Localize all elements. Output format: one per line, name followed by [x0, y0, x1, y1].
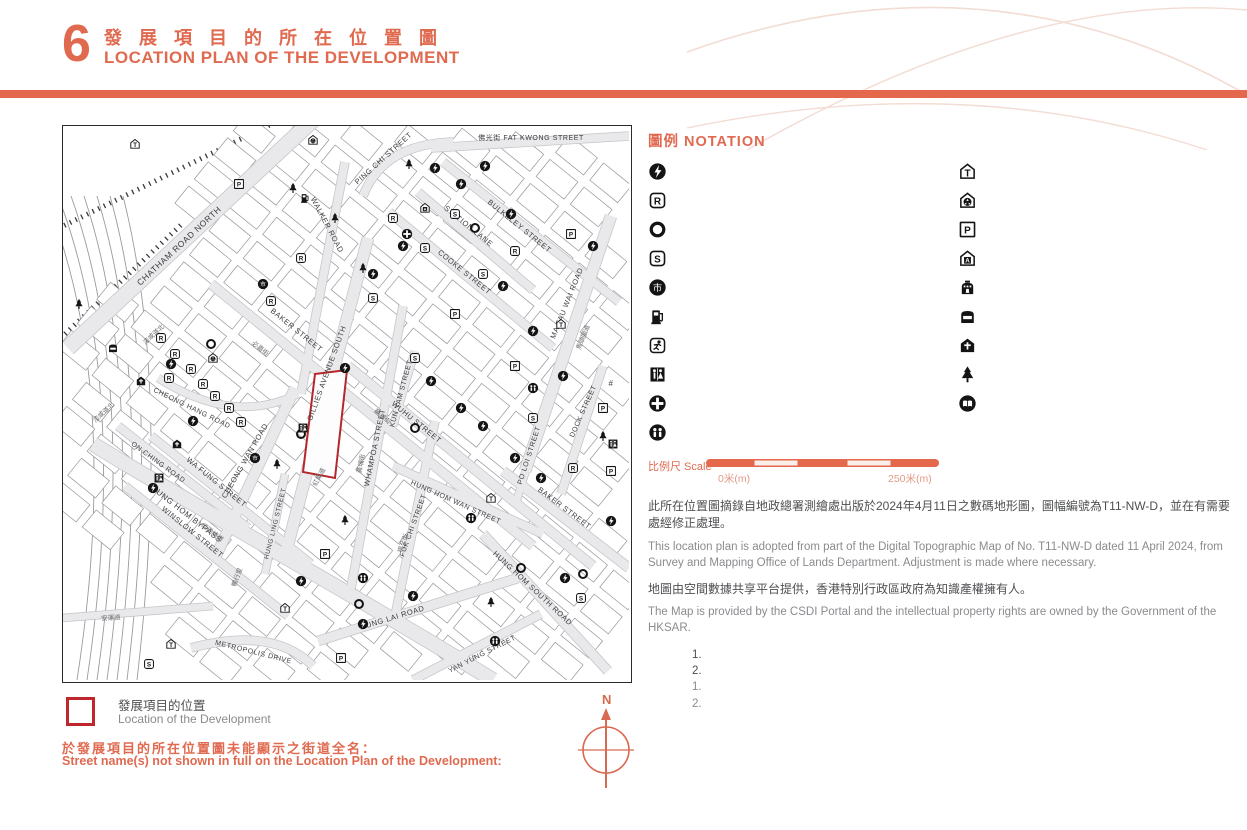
power-icon [497, 280, 510, 293]
svg-text:R: R [513, 249, 518, 256]
north-compass: N [568, 688, 644, 800]
religious-icon: R [185, 363, 198, 376]
power-icon [425, 375, 438, 388]
legend-item [958, 306, 1242, 326]
svg-text:R: R [227, 406, 232, 413]
svg-text:S: S [423, 246, 427, 253]
legend-item [958, 277, 1242, 297]
addiction-icon: A [958, 249, 977, 268]
notes-label [648, 647, 692, 663]
scale-start-label: 0米(m) [718, 471, 750, 486]
svg-text:P: P [237, 182, 241, 189]
svg-text:P: P [569, 232, 573, 239]
svg-text:S: S [481, 272, 485, 279]
power-icon [479, 160, 492, 173]
svg-text:P: P [453, 312, 457, 319]
note-row: 1. [648, 679, 1242, 695]
power-icon [605, 515, 618, 528]
utility-icon [353, 598, 366, 611]
svg-text:P: P [339, 656, 343, 663]
svg-text:S: S [147, 662, 151, 669]
street-names-list [62, 772, 582, 775]
power-icon [339, 362, 352, 375]
transport-icon: T [485, 492, 498, 505]
carpark-icon: P [449, 308, 462, 321]
school-icon: S [527, 412, 540, 425]
power-icon [397, 240, 410, 253]
transport-icon: T [165, 638, 178, 651]
scale-bar-row: 比例尺 Scale 0米(m) 250米(m) [648, 458, 1242, 488]
transport-icon: T [279, 602, 292, 615]
welfare-icon [357, 572, 370, 585]
svg-text:R: R [654, 197, 661, 208]
market-icon: 市 [648, 278, 667, 297]
legend-item: T [958, 161, 1242, 181]
petrol-icon [299, 192, 312, 205]
svg-text:T: T [169, 642, 173, 649]
park-icon [597, 430, 610, 443]
utility-icon [648, 220, 667, 239]
svg-text:R: R [571, 466, 576, 473]
svg-text:R: R [189, 367, 194, 374]
note-text [708, 696, 1242, 712]
religious-icon: R [648, 191, 667, 210]
welfare-icon [527, 382, 540, 395]
power-icon [295, 575, 308, 588]
decorative-arcs [687, 0, 1247, 150]
carpark-icon: P [233, 178, 246, 191]
religious-icon: R [163, 372, 176, 385]
svg-text:P: P [323, 552, 327, 559]
refuse-icon [958, 191, 977, 210]
note-text [708, 679, 1242, 695]
school-icon: S [419, 242, 432, 255]
note-row: 2. [648, 696, 1242, 712]
scale-bar [706, 459, 939, 467]
development-location-key-swatch [66, 697, 95, 726]
transport-icon: T [129, 138, 142, 151]
school-icon: S [648, 249, 667, 268]
svg-text:S: S [371, 296, 375, 303]
svg-text:S: S [413, 356, 417, 363]
school-icon: S [575, 592, 588, 605]
source-paragraph-2-en: The Map is provided by the CSDI Portal a… [648, 604, 1242, 636]
note-row: 1. [648, 647, 1242, 663]
svg-text:R: R [391, 216, 396, 223]
sports-icon [648, 336, 667, 355]
power-icon [559, 572, 572, 585]
legend-item [648, 335, 958, 355]
development-location-label-en: Location of the Development [118, 712, 271, 726]
power-icon [587, 240, 600, 253]
svg-text:R: R [167, 376, 172, 383]
svg-text:T: T [559, 322, 563, 329]
power-icon [407, 590, 420, 603]
svg-text:R: R [239, 420, 244, 427]
page-title-en: LOCATION PLAN OF THE DEVELOPMENT [104, 48, 460, 68]
religious-icon: R [155, 332, 168, 345]
street-names-heading-en: Street name(s) not shown in full on the … [62, 754, 502, 768]
map-street-label: # [608, 379, 613, 388]
scale-end-label: 250米(m) [888, 471, 932, 486]
funeral-icon [958, 336, 977, 355]
religious-icon: R [169, 348, 182, 361]
svg-text:T: T [133, 142, 137, 149]
park-icon [287, 182, 300, 195]
legend-item: S [648, 248, 958, 268]
north-label: N [602, 692, 611, 707]
religious-icon: R [235, 416, 248, 429]
library-icon [958, 394, 977, 413]
school-icon: S [409, 352, 422, 365]
svg-text:A: A [965, 257, 970, 264]
religious-icon: R [295, 252, 308, 265]
svg-text:R: R [299, 256, 304, 263]
legend-item [648, 422, 958, 442]
carpark-icon: P [319, 548, 332, 561]
power-icon [535, 472, 548, 485]
religious-icon: R [223, 402, 236, 415]
clinic-icon [401, 228, 414, 241]
market-icon: 市 [249, 452, 262, 465]
legend-item [958, 190, 1242, 210]
location-plan-map[interactable]: CHATHAM ROAD NORTHPING CHI STREET佛光街 FAT… [62, 125, 632, 683]
svg-text:T: T [283, 606, 287, 613]
utility-icon [469, 222, 482, 235]
legend-item: 市 [648, 277, 958, 297]
svg-text:T: T [964, 168, 970, 179]
park-icon [403, 158, 416, 171]
power-icon [509, 452, 522, 465]
market-icon: 市 [257, 278, 270, 291]
note-text [708, 663, 1242, 679]
page-title-zh: 發 展 項 目 的 所 在 位 置 圖 [104, 24, 443, 50]
park-icon [271, 458, 284, 471]
legend-item [958, 335, 1242, 355]
religious-icon: R [265, 295, 278, 308]
source-paragraph-1-zh: 此所在位置圖摘錄自地政總署測繪處出版於2024年4月11日之數碼地形圖，圖幅編號… [648, 498, 1242, 533]
carpark-icon: P [958, 220, 977, 239]
source-paragraph-1-en: This location plan is adopted from part … [648, 539, 1242, 571]
funeral-icon [171, 438, 184, 451]
svg-text:P: P [513, 364, 517, 371]
legend-item [958, 364, 1242, 384]
mortuary-icon [958, 307, 977, 326]
note-row: 2. [648, 663, 1242, 679]
religious-icon: R [387, 212, 400, 225]
school-icon: S [449, 208, 462, 221]
notes-block: 1.2.1.2. [648, 647, 1242, 712]
school-icon: S [477, 268, 490, 281]
right-column: 圖例 NOTATION RS市 TPA 比例尺 Scale 0米(m) 250米… [648, 130, 1242, 712]
refuse-icon [307, 134, 320, 147]
carpark-icon: P [335, 652, 348, 665]
svg-text:T: T [489, 496, 493, 503]
svg-text:P: P [601, 406, 605, 413]
addiction-icon: A [419, 202, 432, 215]
park-icon [485, 596, 498, 609]
legend-item: R [648, 190, 958, 210]
toilet-icon [648, 365, 667, 384]
park-icon [339, 514, 352, 527]
funeral-icon [135, 375, 148, 388]
source-paragraph-2-zh: 地圖由空間數據共享平台提供，香港特別行政區政府為知識產權擁有人。 [648, 581, 1242, 598]
power-icon [357, 618, 370, 631]
map-street-label: 佛光街 FAT KWONG STREET [478, 133, 584, 142]
utility-icon [409, 422, 422, 435]
legend-item [648, 161, 958, 181]
carpark-icon: P [509, 360, 522, 373]
svg-text:S: S [453, 212, 457, 219]
svg-text:R: R [213, 394, 218, 401]
religious-icon: R [209, 390, 222, 403]
notation-legend: RS市 TPA [648, 161, 1242, 442]
svg-text:P: P [609, 469, 613, 476]
page-number: 6 [62, 18, 91, 70]
welfare-icon [489, 635, 502, 648]
notation-title: 圖例 NOTATION [648, 130, 1242, 151]
legend-item [648, 219, 958, 239]
legend-item [648, 393, 958, 413]
power-icon [455, 402, 468, 415]
school-icon: S [143, 658, 156, 671]
transport-icon: T [555, 318, 568, 331]
svg-text:R: R [173, 352, 178, 359]
carpark-icon: P [565, 228, 578, 241]
utility-icon [515, 562, 528, 575]
power-icon [477, 420, 490, 433]
legend-item [648, 306, 958, 326]
svg-text:S: S [654, 255, 661, 266]
power-icon [187, 415, 200, 428]
svg-text:R: R [159, 336, 164, 343]
clinic-icon [648, 394, 667, 413]
toilet-icon [297, 422, 310, 435]
legend-item [648, 364, 958, 384]
petrol-icon [648, 307, 667, 326]
svg-text:A: A [424, 207, 427, 212]
school-icon: S [367, 292, 380, 305]
power-icon [557, 370, 570, 383]
park-icon [73, 298, 86, 311]
power-icon [648, 162, 667, 181]
header-divider-bar [0, 90, 1247, 98]
notes-label [648, 663, 692, 679]
park-icon [958, 365, 977, 384]
toilet-icon [153, 472, 166, 485]
welfare-icon [465, 512, 478, 525]
park-icon [357, 262, 370, 275]
notes-label [648, 696, 692, 712]
legend-item: P [958, 219, 1242, 239]
utility-icon [205, 338, 218, 351]
religious-icon: R [509, 245, 522, 258]
columbarium-icon [958, 278, 977, 297]
carpark-icon: P [597, 402, 610, 415]
svg-text:P: P [964, 226, 971, 237]
park-icon [329, 212, 342, 225]
scale-label: 比例尺 Scale [648, 458, 712, 474]
legend-item: A [958, 248, 1242, 268]
religious-icon: R [567, 462, 580, 475]
mortuary-icon [107, 342, 120, 355]
power-icon [455, 178, 468, 191]
welfare-icon [648, 423, 667, 442]
carpark-icon: P [605, 465, 618, 478]
svg-text:R: R [269, 299, 274, 306]
power-icon [527, 325, 540, 338]
svg-text:市: 市 [653, 282, 662, 293]
power-icon [505, 208, 518, 221]
power-icon [429, 162, 442, 175]
svg-text:S: S [531, 416, 535, 423]
notes-label [648, 679, 692, 695]
note-text [708, 647, 1242, 663]
utility-icon [577, 568, 590, 581]
legend-item [958, 393, 1242, 413]
svg-text:R: R [201, 382, 206, 389]
transport-icon: T [958, 162, 977, 181]
svg-text:S: S [579, 596, 583, 603]
refuse-icon [207, 352, 220, 365]
